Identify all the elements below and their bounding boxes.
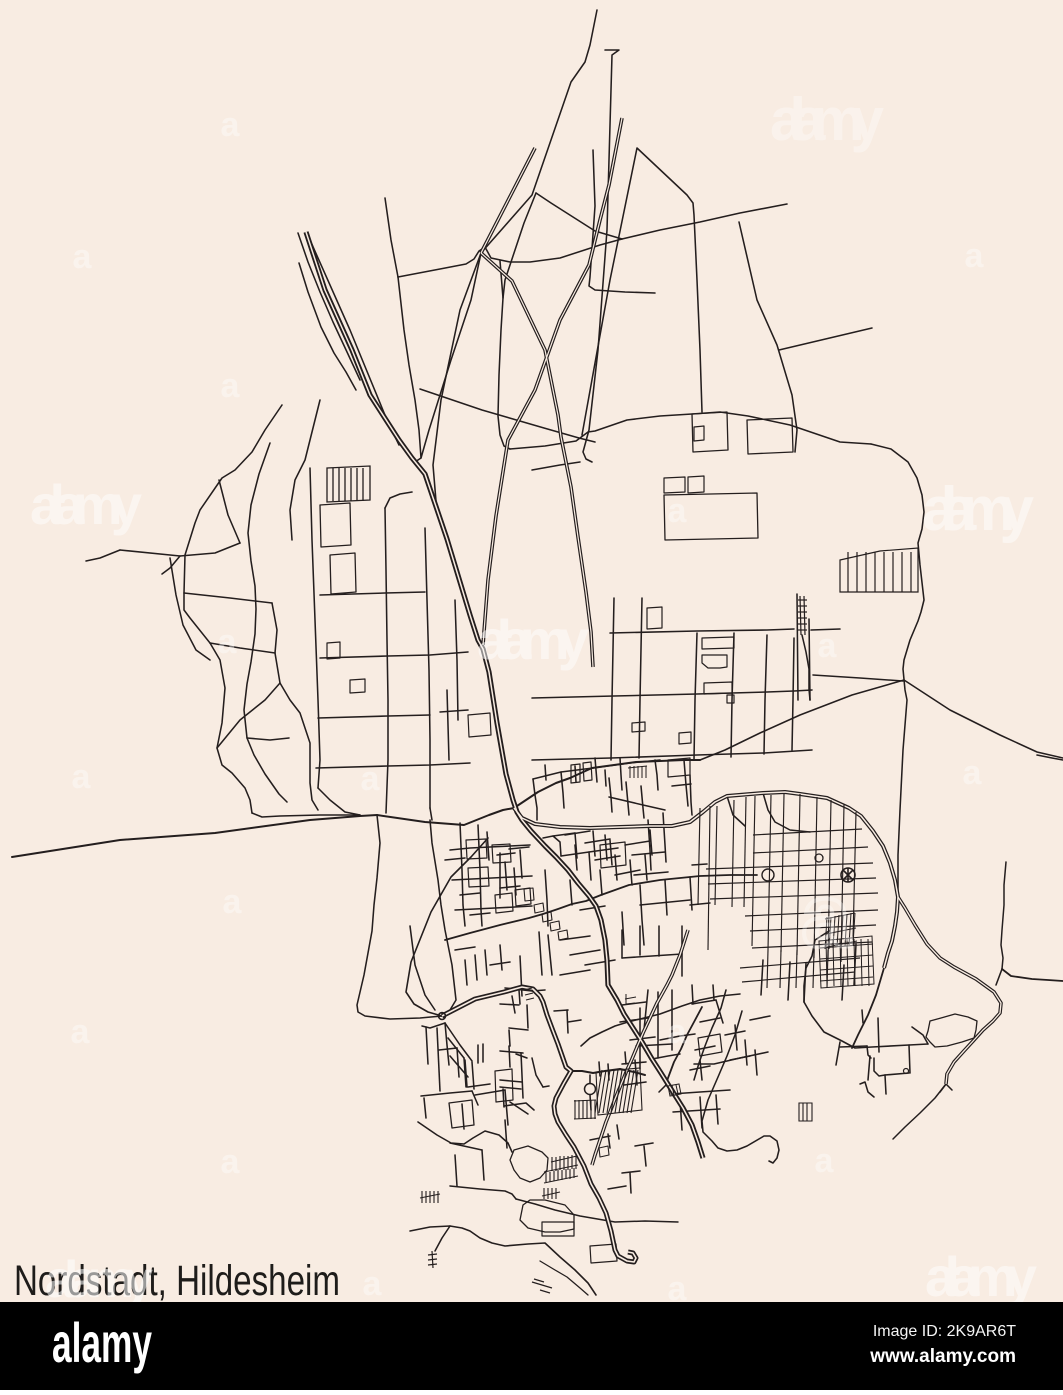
svg-text:alamy: alamy	[45, 1251, 153, 1309]
svg-text:alamy: alamy	[922, 475, 1035, 544]
svg-text:a: a	[71, 1013, 91, 1051]
svg-text:a: a	[361, 760, 381, 798]
svg-text:a: a	[72, 758, 92, 796]
svg-text:a: a	[815, 1142, 835, 1180]
svg-text:alamy: alamy	[52, 1311, 152, 1374]
svg-text:alamy: alamy	[477, 608, 589, 671]
svg-text:a: a	[965, 237, 985, 275]
svg-text:alamy: alamy	[925, 1245, 1037, 1308]
svg-text:a: a	[668, 492, 688, 530]
svg-text:a: a	[818, 627, 838, 665]
svg-text:a: a	[221, 106, 241, 144]
svg-text:alamy: alamy	[770, 86, 885, 153]
svg-text:a: a	[221, 367, 241, 405]
svg-text:a: a	[73, 238, 93, 276]
svg-text:a: a	[668, 1013, 688, 1051]
svg-text:a: a	[221, 1143, 241, 1181]
svg-text:a: a	[218, 623, 238, 661]
svg-text:alamy: alamy	[30, 473, 142, 536]
svg-text:a: a	[223, 883, 243, 921]
svg-text:Image ID: 2K9AR6T: Image ID: 2K9AR6T	[873, 1323, 1016, 1340]
svg-text:a: a	[802, 866, 852, 965]
svg-text:a: a	[363, 1265, 383, 1303]
svg-text:a: a	[963, 754, 983, 792]
svg-text:www.alamy.com: www.alamy.com	[869, 1346, 1016, 1367]
